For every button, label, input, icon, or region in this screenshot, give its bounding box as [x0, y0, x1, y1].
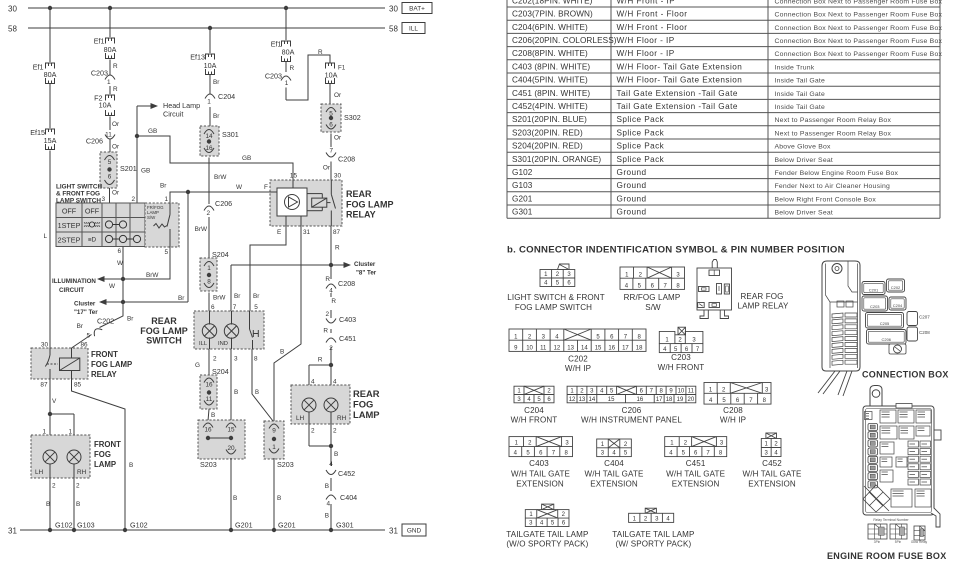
svg-text:20: 20 [688, 397, 695, 403]
svg-text:16: 16 [608, 346, 615, 352]
svg-text:S301(20PIN. ORANGE): S301(20PIN. ORANGE) [512, 155, 601, 164]
svg-text:C204: C204 [524, 406, 544, 415]
svg-text:Tail Gate Extension -Tail Gate: Tail Gate Extension -Tail Gate [617, 102, 738, 111]
svg-text:Or: Or [323, 165, 331, 172]
svg-text:B: B [277, 495, 281, 502]
svg-text:19: 19 [677, 397, 684, 403]
svg-text:Or: Or [112, 144, 120, 151]
svg-text:Br: Br [213, 79, 220, 86]
svg-text:S203(20PIN. RED): S203(20PIN. RED) [512, 128, 583, 137]
svg-text:5Pin: 5Pin [895, 540, 902, 544]
svg-text:C452: C452 [338, 469, 355, 478]
svg-text:R: R [331, 298, 336, 305]
svg-text:W/H Front - Floor: W/H Front - Floor [617, 23, 688, 32]
svg-text:E: E [277, 229, 281, 236]
svg-text:C208: C208 [338, 155, 355, 164]
svg-text:W/H Front - Floor: W/H Front - Floor [617, 10, 688, 19]
svg-text:Connection Box Next to Passeng: Connection Box Next to Passenger Room Fu… [775, 0, 943, 5]
svg-text:9: 9 [272, 428, 276, 435]
svg-text:C451: C451 [339, 334, 356, 343]
svg-text:87: 87 [40, 382, 48, 389]
svg-text:87: 87 [333, 229, 341, 236]
svg-text:W/H Front - IP: W/H Front - IP [617, 0, 676, 5]
svg-text:F1: F1 [338, 65, 346, 72]
svg-text:B: B [234, 389, 238, 396]
svg-text:OFF: OFF [62, 207, 77, 216]
svg-text:85: 85 [74, 382, 82, 389]
svg-text:Connection Box Next to Passeng: Connection Box Next to Passenger Room Fu… [775, 25, 943, 32]
svg-text:C202: C202 [97, 317, 114, 326]
svg-text:C203(7PIN. BROWN): C203(7PIN. BROWN) [512, 10, 593, 19]
svg-text:Or: Or [112, 121, 120, 128]
svg-text:Ground: Ground [617, 181, 647, 190]
svg-text:G: G [195, 362, 200, 369]
svg-text:W/H FRONT: W/H FRONT [658, 363, 705, 372]
svg-text:BrW: BrW [195, 226, 208, 233]
svg-text:TAILGATE TAIL LAMP: TAILGATE TAIL LAMP [506, 530, 588, 539]
svg-text:G103: G103 [512, 181, 533, 190]
svg-text:4: 4 [329, 461, 333, 468]
svg-text:2STEP: 2STEP [58, 236, 81, 245]
svg-text:REAR: REAR [346, 189, 372, 199]
svg-text:C202: C202 [891, 285, 901, 290]
svg-text:16: 16 [637, 397, 644, 403]
svg-text:CIRCUIT: CIRCUIT [59, 287, 84, 294]
svg-text:14: 14 [581, 346, 588, 352]
svg-text:10: 10 [526, 346, 533, 352]
svg-text:Below Driver Seat: Below Driver Seat [775, 157, 834, 164]
svg-text:G201: G201 [235, 521, 253, 530]
svg-text:GB: GB [141, 168, 150, 175]
svg-text:Br: Br [178, 295, 185, 302]
svg-text:EXTENSION: EXTENSION [516, 479, 564, 488]
svg-text:b. CONNECTOR INDENTIFICATION S: b. CONNECTOR INDENTIFICATION SYMBOL & PI… [507, 245, 845, 256]
svg-text:FRONT: FRONT [94, 440, 121, 449]
svg-text:GB: GB [242, 155, 251, 162]
svg-text:FOG LAMP SWITCH: FOG LAMP SWITCH [515, 303, 592, 312]
svg-text:B: B [334, 451, 338, 458]
svg-text:S201: S201 [120, 164, 137, 173]
svg-text:18: 18 [666, 397, 673, 403]
svg-text:Circuit: Circuit [163, 110, 183, 119]
svg-text:W/H TAIL GATE: W/H TAIL GATE [511, 469, 570, 478]
svg-text:B: B [211, 412, 215, 419]
svg-text:R: R [318, 49, 323, 56]
svg-text:W/H Floor - IP: W/H Floor - IP [617, 36, 675, 45]
svg-text:11: 11 [105, 132, 112, 139]
svg-text:FOG LAMP: FOG LAMP [140, 326, 188, 336]
svg-text:G301: G301 [336, 521, 354, 530]
svg-text:12: 12 [554, 346, 561, 352]
svg-text:2: 2 [311, 428, 315, 435]
svg-text:13: 13 [567, 346, 574, 352]
svg-text:Ef1: Ef1 [271, 40, 282, 49]
svg-text:R: R [318, 357, 323, 364]
svg-text:1: 1 [272, 444, 276, 451]
svg-text:3: 3 [101, 196, 105, 203]
svg-text:15: 15 [608, 397, 615, 403]
svg-text:4: 4 [333, 379, 337, 386]
svg-text:LH: LH [35, 469, 44, 476]
svg-text:FOG LAMP: FOG LAMP [91, 360, 132, 369]
svg-text:"8" Ter: "8" Ter [356, 270, 377, 277]
svg-text:80A: 80A [44, 70, 57, 79]
svg-text:2: 2 [207, 210, 211, 217]
svg-text:Inside Tail Gate: Inside Tail Gate [775, 78, 826, 85]
svg-text:EXTENSION: EXTENSION [748, 479, 796, 488]
svg-text:C203: C203 [870, 304, 880, 309]
svg-text:Ground: Ground [617, 168, 647, 177]
svg-text:14: 14 [205, 133, 213, 140]
svg-text:Connection Box Next to Passeng: Connection Box Next to Passenger Room Fu… [775, 12, 943, 19]
svg-text:Splice Pack: Splice Pack [617, 128, 665, 137]
svg-text:Next to Passenger Room Relay B: Next to Passenger Room Relay Box [775, 117, 892, 124]
svg-text:1: 1 [285, 80, 289, 87]
svg-text:C403: C403 [339, 315, 356, 324]
svg-text:R: R [325, 276, 330, 283]
svg-text:Br: Br [253, 293, 260, 300]
svg-text:C205: C205 [880, 321, 890, 326]
svg-text:16: 16 [205, 382, 213, 389]
svg-text:V: V [52, 398, 57, 405]
svg-text:REAR: REAR [353, 388, 380, 399]
svg-text:11: 11 [688, 389, 695, 395]
svg-text:LAMP RELAY: LAMP RELAY [738, 301, 790, 310]
svg-text:G201: G201 [512, 194, 533, 203]
svg-text:Fender Next to Air Cleaner Hou: Fender Next to Air Cleaner Housing [775, 183, 891, 190]
svg-text:15: 15 [227, 427, 235, 434]
svg-text:Cluster: Cluster [354, 261, 376, 268]
svg-text:ILL: ILL [409, 26, 418, 33]
svg-text:RELAY: RELAY [91, 370, 118, 379]
svg-text:RH: RH [337, 415, 347, 422]
svg-text:Ef1: Ef1 [33, 63, 44, 72]
svg-text:C201: C201 [869, 288, 879, 293]
svg-text:B: B [233, 495, 237, 502]
svg-text:S301: S301 [222, 130, 239, 139]
svg-text:58: 58 [389, 25, 398, 34]
svg-text:C202: C202 [568, 355, 588, 364]
svg-text:C203: C203 [671, 353, 691, 362]
svg-text:(W/O SPORTY PACK): (W/O SPORTY PACK) [506, 539, 588, 548]
svg-text:14: 14 [589, 397, 596, 403]
svg-text:G201: G201 [278, 521, 296, 530]
svg-text:C403: C403 [529, 459, 549, 468]
svg-text:6: 6 [211, 304, 215, 311]
svg-text:G103: G103 [77, 521, 95, 530]
svg-text:RELAY: RELAY [346, 209, 376, 219]
svg-text:C204: C204 [893, 303, 903, 308]
svg-text:15: 15 [595, 346, 602, 352]
svg-text:ILLUMINATION: ILLUMINATION [52, 278, 96, 285]
svg-text:2: 2 [333, 428, 337, 435]
svg-text:RH: RH [77, 469, 87, 476]
svg-text:Below Right Front Console Box: Below Right Front Console Box [775, 196, 877, 203]
svg-text:6: 6 [329, 122, 333, 129]
svg-text:C206: C206 [622, 406, 642, 415]
svg-text:F: F [264, 184, 268, 191]
svg-text:C206: C206 [215, 199, 232, 208]
svg-text:BrW: BrW [213, 295, 226, 302]
svg-text:12: 12 [569, 397, 576, 403]
svg-text:18: 18 [636, 346, 643, 352]
svg-text:10A: 10A [99, 101, 112, 110]
svg-text:Next to Passenger Room Relay B: Next to Passenger Room Relay Box [775, 130, 892, 137]
svg-text:30: 30 [8, 5, 17, 14]
svg-text:C204(6PIN. WHITE): C204(6PIN. WHITE) [512, 23, 588, 32]
svg-text:2: 2 [329, 345, 333, 352]
svg-text:4: 4 [326, 501, 330, 508]
svg-text:W/H Floor- Tail Gate Extension: W/H Floor- Tail Gate Extension [617, 76, 743, 85]
svg-text:S/W: S/W [147, 215, 156, 220]
svg-text:FRONT: FRONT [91, 350, 118, 359]
svg-text:R: R [290, 65, 295, 72]
svg-text:Above Glove Box: Above Glove Box [775, 144, 832, 151]
svg-text:GB: GB [148, 128, 157, 135]
svg-text:5: 5 [164, 249, 168, 256]
svg-text:B: B [280, 349, 284, 356]
svg-text:S/W: S/W [645, 303, 661, 312]
svg-text:W: W [117, 260, 124, 267]
svg-text:Br: Br [234, 293, 241, 300]
svg-text:C404(5PIN. WHITE): C404(5PIN. WHITE) [512, 76, 588, 85]
svg-text:5: 5 [108, 159, 112, 166]
svg-text:"17" Ter: "17" Ter [74, 309, 98, 316]
svg-text:FOG: FOG [353, 399, 373, 410]
svg-text:ENGINE ROOM FUSE BOX: ENGINE ROOM FUSE BOX [827, 551, 947, 561]
svg-text:Relay Terminal Number: Relay Terminal Number [873, 518, 909, 522]
svg-text:C207: C207 [919, 315, 930, 320]
svg-text:16: 16 [204, 427, 212, 434]
svg-text:Splice Pack: Splice Pack [617, 155, 665, 164]
svg-text:31: 31 [389, 527, 398, 536]
svg-text:W/H TAIL GATE: W/H TAIL GATE [666, 469, 725, 478]
svg-text:3Pin: 3Pin [874, 540, 881, 544]
svg-text:80A: 80A [104, 45, 117, 54]
svg-text:Br: Br [77, 323, 84, 330]
svg-text:10A: 10A [204, 61, 217, 70]
svg-text:C204: C204 [218, 92, 235, 101]
svg-text:2: 2 [131, 196, 135, 203]
svg-text:Tail Gate Extension -Tail Gate: Tail Gate Extension -Tail Gate [617, 89, 738, 98]
svg-text:Inside Tail Gate: Inside Tail Gate [775, 104, 826, 111]
svg-text:B: B [325, 513, 329, 520]
svg-text:7: 7 [329, 148, 333, 155]
svg-text:Or: Or [112, 190, 120, 197]
svg-text:86: 86 [81, 342, 89, 349]
svg-text:R: R [113, 86, 118, 93]
svg-text:Connection Box Next to Passeng: Connection Box Next to Passenger Room Fu… [775, 38, 943, 45]
svg-text:C208: C208 [919, 330, 930, 335]
svg-text:C206(20PIN. COLORLESS): C206(20PIN. COLORLESS) [512, 36, 617, 45]
svg-text:TAILGATE TAIL LAMP: TAILGATE TAIL LAMP [612, 530, 694, 539]
svg-text:RR/FOG LAMP: RR/FOG LAMP [624, 293, 681, 302]
svg-text:31: 31 [8, 527, 17, 536]
svg-text:SWITCH: SWITCH [146, 336, 182, 346]
svg-text:Splice Pack: Splice Pack [617, 142, 665, 151]
svg-text:S204(20PIN. RED): S204(20PIN. RED) [512, 142, 583, 151]
svg-text:17: 17 [622, 346, 629, 352]
svg-text:Ground: Ground [617, 208, 647, 217]
svg-text:C452: C452 [762, 459, 782, 468]
svg-text:R: R [323, 328, 328, 335]
svg-text:S204: S204 [212, 367, 229, 376]
svg-text:W/H Floor- Tail Gate Extension: W/H Floor- Tail Gate Extension [617, 62, 743, 71]
svg-text:G102: G102 [55, 521, 73, 530]
svg-text:C404: C404 [604, 459, 624, 468]
svg-text:BrW: BrW [146, 272, 159, 279]
svg-text:30: 30 [389, 5, 398, 14]
svg-text:& FRONT FOG: & FRONT FOG [56, 191, 100, 198]
svg-text:W/H INSTRUMENT PANEL: W/H INSTRUMENT PANEL [581, 416, 682, 425]
svg-text:Below Driver Seat: Below Driver Seat [775, 210, 834, 217]
svg-text:Fender Below Engine Room Fuse: Fender Below Engine Room Fuse Box [775, 170, 899, 177]
svg-text:G102: G102 [130, 521, 148, 530]
svg-text:B: B [325, 483, 329, 490]
svg-text:OFF: OFF [85, 207, 100, 216]
svg-text:R: R [113, 63, 118, 70]
svg-text:R: R [335, 245, 340, 252]
svg-text:4: 4 [311, 379, 315, 386]
svg-text:W/H TAIL GATE: W/H TAIL GATE [743, 469, 802, 478]
svg-text:Splice Pack: Splice Pack [617, 115, 665, 124]
svg-text:C404: C404 [340, 493, 357, 502]
svg-text:C206: C206 [86, 137, 103, 146]
svg-text:Glow Relay: Glow Relay [911, 540, 928, 544]
svg-text:Or: Or [334, 135, 342, 142]
svg-text:31: 31 [303, 229, 311, 236]
svg-text:C206: C206 [881, 337, 891, 342]
svg-text:REAR FOG: REAR FOG [741, 292, 784, 301]
svg-text:C403 (8PIN. WHITE): C403 (8PIN. WHITE) [512, 62, 590, 71]
svg-text:ILL: ILL [199, 341, 208, 347]
svg-text:B: B [76, 501, 80, 508]
svg-text:W/H IP: W/H IP [565, 364, 591, 373]
svg-text:1: 1 [42, 429, 46, 436]
svg-text:30: 30 [334, 173, 342, 180]
svg-text:S203: S203 [277, 460, 294, 469]
svg-text:(W/ SPORTY PACK): (W/ SPORTY PACK) [616, 539, 692, 548]
svg-text:S201(20PIN. BLUE): S201(20PIN. BLUE) [512, 115, 587, 124]
svg-text:2: 2 [325, 311, 329, 318]
svg-text:C451 (8PIN. WHITE): C451 (8PIN. WHITE) [512, 89, 590, 98]
svg-text:BrW: BrW [214, 174, 227, 181]
svg-text:B: B [255, 390, 259, 396]
svg-text:GND: GND [407, 528, 422, 535]
svg-text:58: 58 [8, 25, 17, 34]
svg-text:B: B [129, 462, 133, 469]
svg-text:S302: S302 [344, 113, 361, 122]
svg-text:1: 1 [207, 98, 211, 105]
svg-text:Or: Or [334, 92, 342, 99]
svg-text:17: 17 [656, 397, 663, 403]
svg-text:Br: Br [213, 113, 220, 120]
svg-text:C452(4PIN. WHITE): C452(4PIN. WHITE) [512, 102, 588, 111]
svg-text:S204: S204 [212, 250, 229, 259]
svg-text:4: 4 [329, 288, 333, 295]
svg-text:1: 1 [207, 265, 211, 272]
svg-text:Inside Tail Gate: Inside Tail Gate [775, 91, 826, 98]
svg-text:15A: 15A [44, 136, 57, 145]
svg-text:8: 8 [254, 356, 258, 363]
svg-text:10: 10 [678, 389, 685, 395]
svg-text:CONNECTION BOX: CONNECTION BOX [862, 370, 949, 380]
svg-text:W: W [236, 184, 243, 191]
svg-text:LH: LH [296, 415, 305, 422]
svg-text:REAR: REAR [151, 316, 177, 326]
svg-text:LAMP: LAMP [353, 409, 380, 420]
svg-text:1STEP: 1STEP [58, 221, 81, 230]
svg-text:LIGHT SWITCH & FRONT: LIGHT SWITCH & FRONT [507, 293, 604, 302]
svg-text:W/H TAIL GATE: W/H TAIL GATE [585, 469, 644, 478]
svg-text:Br: Br [160, 183, 167, 190]
svg-text:C203: C203 [265, 72, 282, 81]
svg-text:11: 11 [540, 346, 547, 352]
svg-text:10A: 10A [325, 71, 338, 80]
svg-text:2: 2 [76, 483, 80, 490]
svg-text:C202(18PIN. WHITE): C202(18PIN. WHITE) [512, 0, 593, 5]
svg-text:30: 30 [41, 342, 49, 349]
svg-text:Br: Br [127, 316, 134, 323]
svg-text:FOG LAMP: FOG LAMP [346, 199, 394, 209]
svg-text:IND: IND [218, 341, 228, 347]
svg-text:1: 1 [107, 79, 111, 86]
svg-text:B: B [46, 501, 50, 508]
svg-text:5: 5 [254, 304, 258, 311]
svg-text:7: 7 [233, 304, 237, 311]
svg-text:W/H IP: W/H IP [720, 416, 746, 425]
svg-text:1: 1 [68, 429, 72, 436]
svg-text:≡D: ≡D [88, 237, 97, 244]
svg-text:13: 13 [579, 397, 586, 403]
svg-text:G301: G301 [512, 208, 533, 217]
svg-text:Ground: Ground [617, 194, 647, 203]
svg-text:LIGHT SWITCH: LIGHT SWITCH [56, 184, 103, 191]
svg-text:Inside Trunk: Inside Trunk [775, 64, 815, 71]
svg-text:W/H FRONT: W/H FRONT [511, 416, 558, 425]
svg-text:G102: G102 [512, 168, 533, 177]
svg-text:C208(8PIN. WHITE): C208(8PIN. WHITE) [512, 49, 588, 58]
svg-text:EXTENSION: EXTENSION [672, 479, 720, 488]
svg-text:L: L [43, 233, 47, 240]
svg-text:C203: C203 [91, 69, 108, 78]
svg-text:W: W [109, 283, 116, 290]
svg-text:8: 8 [207, 279, 211, 286]
svg-text:3: 3 [234, 356, 238, 363]
svg-text:2: 2 [213, 356, 217, 363]
svg-text:20: 20 [227, 445, 235, 452]
svg-text:6: 6 [108, 174, 112, 181]
svg-text:C451: C451 [686, 459, 706, 468]
svg-text:1: 1 [164, 196, 168, 203]
svg-text:80A: 80A [282, 48, 295, 57]
svg-text:BAT+: BAT+ [409, 6, 425, 13]
svg-text:C208: C208 [338, 279, 355, 288]
svg-text:6: 6 [117, 248, 121, 255]
svg-text:EXTENSION: EXTENSION [590, 479, 638, 488]
svg-text:S203: S203 [200, 460, 217, 469]
svg-text:Cluster: Cluster [74, 301, 96, 308]
svg-text:15: 15 [290, 173, 298, 180]
svg-text:W/H Floor - IP: W/H Floor - IP [617, 49, 675, 58]
svg-text:C208: C208 [723, 406, 743, 415]
svg-text:FOG: FOG [94, 450, 111, 459]
svg-text:LAMP: LAMP [94, 460, 116, 469]
svg-text:2: 2 [52, 483, 56, 490]
svg-text:Connection Box Next to Passeng: Connection Box Next to Passenger Room Fu… [775, 51, 943, 58]
svg-text:11: 11 [206, 396, 213, 403]
